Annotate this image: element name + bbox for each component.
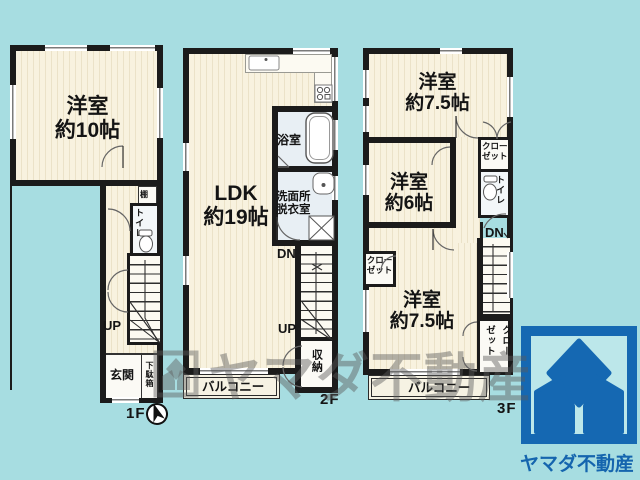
f3-room-middle-label: 洋室 約6帖 (368, 172, 450, 215)
f3-closet-middle-line2: ゼット (482, 152, 507, 162)
f2-up-label: UP (278, 322, 296, 337)
f2-ldk-name: LDK (186, 182, 286, 206)
f2-kitchen-counter (314, 72, 332, 103)
f3-window (440, 48, 462, 54)
f1-entry-door (112, 397, 139, 403)
f3-closet-bottom-col-right: クロー (498, 325, 512, 357)
f3-window (507, 252, 513, 298)
f2-window (293, 48, 330, 54)
f1-toilet-label: トイレ (134, 208, 144, 238)
f1-window (10, 85, 16, 139)
f3-closet-room-left-label: クロー ゼット (366, 256, 393, 275)
f3-room-middle-name: 洋室 (368, 172, 450, 193)
f2-bath-label: 浴室 (277, 134, 301, 147)
f1-shoe-cabinet-label: 下駄箱 (144, 361, 153, 388)
f3-window (507, 77, 513, 117)
compass-icon (144, 400, 170, 426)
f1-up-label: UP (103, 319, 121, 334)
f2-washroom-line1: 洗面所 (276, 191, 311, 204)
f1-room-size: 約10帖 (30, 119, 145, 143)
f3-room-bottom-size: 約7.5帖 (366, 311, 478, 332)
brand-logo (517, 322, 637, 446)
f2-ldk-label: LDK 約19帖 (186, 182, 286, 229)
f2-dn-label: DN (277, 247, 296, 262)
f3-closet-bottom-col-left: ゼット (482, 325, 496, 357)
f3-balcony-door (390, 369, 460, 375)
f3-toilet-label: トイレ (495, 175, 505, 205)
f1-room-name: 洋室 (30, 95, 145, 119)
f3-room-bottom-name: 洋室 (366, 290, 478, 311)
f1-window (157, 88, 163, 138)
f1-floor-label: 1F (126, 406, 146, 423)
brand-name: ヤマダ不動産 (515, 449, 639, 476)
f1-window (45, 45, 87, 51)
f2-window (183, 256, 189, 285)
f2-window (332, 120, 338, 150)
f3-corridor (456, 137, 480, 243)
f1-entrance-label: 玄関 (110, 369, 134, 382)
f3-balcony-label: バルコニー (408, 381, 470, 395)
f3-room-bottom-label: 洋室 約7.5帖 (366, 290, 478, 333)
f3-closet-left-line2: ゼット (366, 266, 393, 276)
floorplan-canvas: 洋室 約10帖 棚 トイレ UP 玄関 下駄箱 1F LDK 約19帖 (0, 0, 640, 480)
f1-site-line (10, 186, 12, 390)
f1-shelf-label: 棚 (140, 191, 148, 200)
f3-floor-label: 3F (497, 401, 517, 418)
f2-window (183, 143, 189, 171)
f1-stairs (127, 253, 160, 345)
f3-window (363, 70, 369, 98)
f2-floor-label: 2F (320, 392, 340, 409)
f2-balcony-label: バルコニー (202, 380, 264, 394)
f2-balcony-door (200, 368, 268, 374)
f2-washroom-label: 洗面所 脱衣室 (276, 191, 311, 217)
f1-window (110, 45, 155, 51)
f3-room-top-size: 約7.5帖 (380, 93, 495, 114)
f2-stairs (301, 246, 332, 337)
f3-window (363, 106, 369, 132)
f2-kitchen-counter (245, 54, 332, 73)
f2-window (332, 57, 338, 101)
f3-room-top-label: 洋室 約7.5帖 (380, 72, 495, 115)
f3-closet-bottom-label: クロー ゼット (482, 325, 512, 357)
f1-room-label: 洋室 約10帖 (30, 95, 145, 142)
f3-closet-middle-label: クロー ゼット (482, 142, 507, 161)
f2-storage-label: 収納 (310, 349, 322, 373)
f3-stairs (477, 238, 510, 318)
f3-dn-label: DN (485, 226, 504, 241)
f2-window (332, 176, 338, 200)
f2-ldk-size: 約19帖 (186, 206, 286, 230)
f3-room-top-name: 洋室 (380, 72, 495, 93)
f2-washroom-line2: 脱衣室 (276, 204, 311, 217)
f3-room-middle-size: 約6帖 (368, 193, 450, 214)
